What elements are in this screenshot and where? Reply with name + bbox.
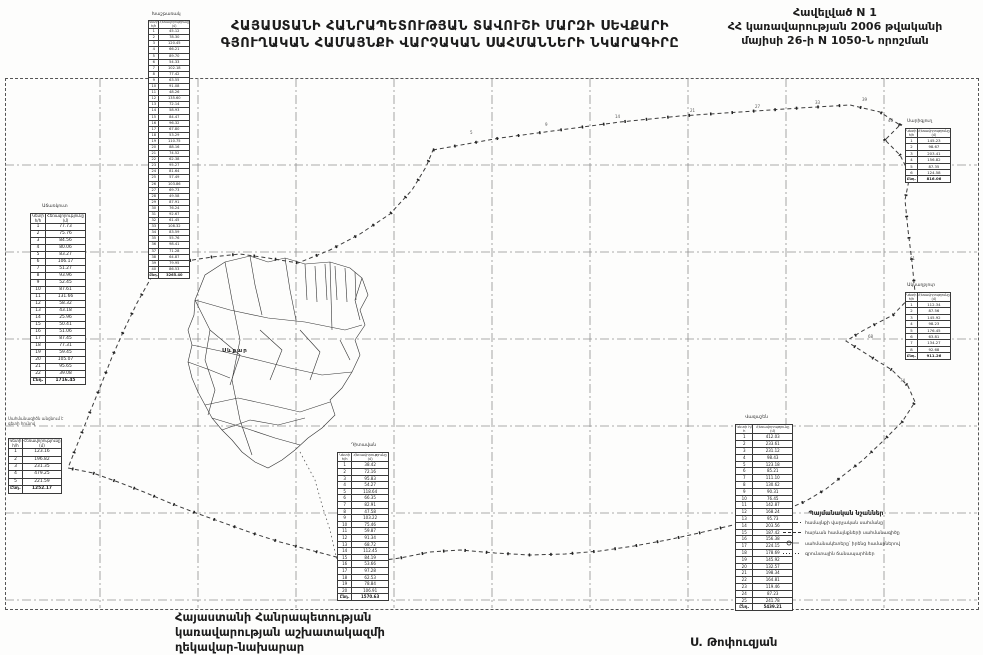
dashed-line-icon: [783, 530, 801, 537]
table-row: 5221.59: [9, 478, 62, 485]
table-total-row: Ընդ.3265.40: [149, 272, 190, 278]
table-cell: 4: [338, 482, 352, 489]
table-cell: 3: [31, 238, 46, 245]
table-cell: 118.64: [352, 488, 389, 495]
table-cell: 59.45: [45, 350, 85, 357]
table-cell: 5: [9, 478, 23, 485]
table-row: 8130.62: [736, 481, 793, 488]
table-cell: 2: [736, 441, 753, 448]
table-header-row: Կետի հ/հՀեռավորությունը (մ): [149, 21, 190, 29]
table-cell: 87.23: [753, 590, 793, 597]
table-row: 1087.61: [31, 287, 86, 294]
table-cell: 23: [736, 583, 753, 590]
table-cell: 76.45: [753, 495, 793, 502]
distance-table-small-left: Կետի հ/հՀեռավորությունը (մ)1123.162196.8…: [8, 438, 62, 494]
table-cell: 4: [31, 245, 46, 252]
signature-line-3: ղեկավար-նախարար: [175, 640, 385, 655]
table-row: 2239.08: [31, 371, 86, 378]
table-cell: 20: [338, 587, 352, 594]
table-cell: 15: [338, 554, 352, 561]
boundary-point-number: 68: [868, 334, 873, 339]
table-row: 1076.45: [736, 495, 793, 502]
boundary-point-number: 61: [910, 256, 915, 261]
table-row: 6106.17: [31, 259, 86, 266]
table-cell: 9: [736, 488, 753, 495]
table-row: 751.27: [31, 266, 86, 273]
table-cell: 8: [338, 508, 352, 515]
dashdot-line-icon: [783, 520, 801, 527]
table-row: 1258.32: [31, 301, 86, 308]
boundary-point-number: 27: [755, 104, 760, 109]
table-cell: 7: [31, 266, 46, 273]
table-cell: Ընդ.: [149, 272, 159, 278]
table-cell: 13: [31, 308, 46, 315]
distance-table: Կետի հ/հՀեռավորությունը (մ)138.42272.163…: [337, 452, 389, 601]
table-cell: 130.62: [753, 481, 793, 488]
distance-table-acharkut: Աճառկուտ Կետի հ/հՀեռավորությունը (մ)177.…: [30, 213, 86, 385]
table-row: 847.58: [338, 508, 389, 515]
legend-item: սահմանակետերը՝ իրենց համարներով: [783, 540, 909, 548]
table-label: Վազաշեն: [745, 415, 768, 420]
table-row: 384.56: [31, 238, 86, 245]
table-cell: 123.16: [22, 449, 61, 456]
signature-line-1: Հայաստանի Հանրապետության: [175, 610, 385, 625]
table-cell: 5: [31, 252, 46, 259]
table-cell: 51.27: [45, 266, 85, 273]
table-header-row: Կետի հ/հՀեռավորությունը (մ): [31, 214, 86, 224]
table-row: 1291.34: [338, 534, 389, 541]
table-cell: 21: [31, 364, 46, 371]
table-row: 1343.18: [31, 308, 86, 315]
table-cell: 17: [736, 543, 753, 550]
legend-item-label: սահմանակետերը՝ իրենց համարներով: [805, 542, 900, 547]
table-row: 275.76: [31, 231, 86, 238]
table-cell: 66.35: [352, 495, 389, 502]
legend-item-label: համայնքի վարչական սահմանը: [805, 521, 883, 526]
table-cell: 8: [736, 481, 753, 488]
table-cell: 20: [31, 357, 46, 364]
column-header: Հեռավորությունը (մ): [45, 214, 85, 224]
table-header-row: Կետի հ/հՀեռավորությունը (մ): [338, 453, 389, 462]
table-cell: 106.17: [45, 259, 85, 266]
table-cell: 19: [31, 350, 46, 357]
table-cell: 8: [31, 273, 46, 280]
table-cell: 13: [338, 541, 352, 548]
table-row: 952.45: [31, 280, 86, 287]
table-cell: Ընդ.: [338, 594, 352, 601]
table-cell: 1: [9, 449, 23, 456]
table-cell: 6: [338, 495, 352, 502]
table-row: 2487.23: [736, 590, 793, 597]
table-cell: 1: [31, 224, 46, 231]
table-header-row: Կետի հ/հՀեռավորությունը (մ): [906, 129, 951, 138]
table-row: 1584.19: [338, 554, 389, 561]
table-label: Սարիգյուղ: [907, 119, 932, 124]
boundary-point-number: 39: [862, 97, 867, 102]
table-cell: 4: [736, 454, 753, 461]
table-cell: 3: [736, 448, 753, 455]
table-row: 583.27: [31, 252, 86, 259]
table-row: 2195.65: [31, 364, 86, 371]
signature-block: Հայաստանի Հանրապետության կառավարության ա…: [175, 610, 385, 655]
table-row: 685.21: [736, 468, 793, 475]
table-cell: 77.31: [45, 343, 85, 350]
table-cell: 68.72: [352, 541, 389, 548]
table-cell: 479.25: [22, 471, 61, 478]
table-cell: 2: [9, 456, 23, 463]
table-cell: 54.27: [352, 482, 389, 489]
table-cell: 103.22: [352, 515, 389, 522]
table-row: 990.31: [736, 488, 793, 495]
table-total-row: Ընդ.1252.17: [9, 486, 62, 493]
table-cell: 11: [31, 294, 46, 301]
table-cell: 241.78: [753, 597, 793, 604]
table-cell: Ընդ.: [9, 486, 23, 493]
table-cell: 17: [338, 567, 352, 574]
table-cell: 2: [31, 231, 46, 238]
border-point-icon: [783, 540, 801, 548]
column-header: Կետի հ/հ: [906, 293, 918, 302]
signature-line-2: կառավարության աշխատակազմի: [175, 625, 385, 640]
table-cell: 105.07: [45, 357, 85, 364]
table-row: 480.06: [31, 245, 86, 252]
table-row: 4479.25: [9, 471, 62, 478]
table-row: 782.91: [338, 501, 389, 508]
table-row: 893.96: [31, 273, 86, 280]
table-cell: 12: [31, 301, 46, 308]
table-cell: 1: [338, 462, 352, 469]
table-cell: 119.46: [753, 583, 793, 590]
table-row: 395.83: [338, 475, 389, 482]
table-row: 1797.28: [338, 567, 389, 574]
table-cell: 38.42: [352, 462, 389, 469]
table-cell: 98.43: [753, 454, 793, 461]
table-cell: 19: [736, 556, 753, 563]
table-cell: 4: [9, 471, 23, 478]
table-row: 20105.07: [31, 357, 86, 364]
table-header-row: Կետի հ/հՀեռավորությունը (մ): [906, 293, 951, 302]
column-header: Կետի հ/հ: [338, 453, 352, 462]
table-cell: 1716.45: [45, 378, 85, 385]
table-row: 1978.84: [338, 581, 389, 588]
table-cell: 11: [338, 528, 352, 535]
table-cell: Ընդ.: [906, 353, 918, 359]
table-cell: 1570.63: [352, 594, 389, 601]
distance-table: Կետի հ/հՀեռավորությունը (մ)1112.34287.56…: [905, 292, 951, 360]
table-row: 138.42: [338, 462, 389, 469]
table-row: 1368.72: [338, 541, 389, 548]
table-cell: 5: [736, 461, 753, 468]
table-cell: 72.16: [352, 469, 389, 476]
table-cell: 25.96: [45, 315, 85, 322]
table-cell: 14: [338, 548, 352, 555]
table-row: 1412.03: [736, 434, 793, 441]
table-cell: 17: [31, 336, 46, 343]
table-row: 5118.64: [338, 488, 389, 495]
legend-item-label: գրունտային ճանապարհներ: [805, 552, 875, 557]
table-cell: 7: [338, 501, 352, 508]
table-cell: 111.10: [753, 475, 793, 482]
table-row: 25241.78: [736, 597, 793, 604]
boundary-point-number: 33: [815, 100, 820, 105]
table-label: Խաշթառակ: [152, 12, 181, 17]
table-cell: 75.46: [352, 521, 389, 528]
table-cell: 3: [338, 475, 352, 482]
table-cell: 10: [338, 521, 352, 528]
table-cell: 21: [736, 570, 753, 577]
boundary-point-number: 21: [690, 108, 695, 113]
table-cell: 9: [338, 515, 352, 522]
table-row: 14112.45: [338, 548, 389, 555]
table-total-row: Ընդ.1570.63: [338, 594, 389, 601]
table-cell: 13: [736, 515, 753, 522]
table-row: 1651.06: [31, 329, 86, 336]
village-label: Սևքար: [222, 348, 248, 354]
distance-table: Կետի հ/հՀեռավորությունը (մ)1123.162196.8…: [8, 438, 62, 494]
table-cell: 59.87: [352, 528, 389, 535]
table-cell: 221.59: [22, 478, 61, 485]
table-cell: 112.45: [352, 548, 389, 555]
table-cell: 412.03: [753, 434, 793, 441]
table-cell: 53.66: [352, 561, 389, 568]
table-row: 1959.45: [31, 350, 86, 357]
table-cell: 18: [338, 574, 352, 581]
table-cell: 80.06: [45, 245, 85, 252]
table-row: 11142.87: [736, 502, 793, 509]
table-cell: 39.08: [45, 371, 85, 378]
table-cell: 231.12: [753, 448, 793, 455]
table-cell: Ընդ.: [906, 176, 918, 182]
column-header: Հեռավորությունը (մ): [917, 293, 950, 302]
table-cell: 90.31: [753, 488, 793, 495]
table-row: 177.73: [31, 224, 86, 231]
column-header: Հեռավորությունը (մ): [159, 21, 190, 29]
distance-table-sarigyugh: Սարիգյուղ Կետի հ/հՀեռավորությունը (մ)114…: [905, 128, 951, 183]
table-cell: 231.35: [22, 464, 61, 471]
table-cell: 10: [736, 495, 753, 502]
table-row: 1653.66: [338, 561, 389, 568]
table-row: 1877.31: [31, 343, 86, 350]
table-cell: 22: [736, 577, 753, 584]
column-header: Հեռավորությունը (մ): [753, 425, 793, 434]
table-cell: 911.26: [917, 353, 950, 359]
table-total-row: Ընդ.1716.45: [31, 378, 86, 385]
distance-table: Կետի հ/հՀեռավորությունը (մ)1145.23298.67…: [905, 128, 951, 183]
table-total-row: Ընդ.5439.21: [736, 604, 793, 611]
map-sheet: Հավելված N 1 ՀՀ կառավարության 2006 թվակա…: [0, 0, 983, 655]
column-header: Հեռավորությունը (մ): [917, 129, 950, 138]
table-row: 498.43: [736, 454, 793, 461]
table-cell: 3265.40: [159, 272, 190, 278]
column-header: Կետի հ/հ: [149, 21, 159, 29]
table-header-row: Կետի հ/հՀեռավորությունը (մ): [9, 439, 62, 449]
table-cell: 12: [338, 534, 352, 541]
table-total-row: Ընդ.816.06: [906, 176, 951, 182]
table-label: Աճառկուտ: [42, 204, 68, 209]
boundary-point-number: 14: [615, 114, 620, 119]
table-cell: 6: [31, 259, 46, 266]
table-cell: 78.84: [352, 581, 389, 588]
table-row: 5123.18: [736, 461, 793, 468]
table-cell: 142.87: [753, 502, 793, 509]
table-cell: 16: [31, 329, 46, 336]
table-cell: 233.61: [753, 441, 793, 448]
map-note: Սահմանագիծն անցնում է գետի հունով: [8, 416, 98, 426]
table-cell: 91.34: [352, 534, 389, 541]
table-row: 272.16: [338, 469, 389, 476]
table-cell: 52.45: [45, 280, 85, 287]
distance-table-khashtarak: Խաշթառակ Կետի հ/հՀեռավորությունը (մ)145.…: [148, 20, 188, 279]
dotted-line-icon: [783, 551, 801, 558]
legend-item: հարևան համայնքների սահմանագիծը: [783, 530, 909, 537]
table-cell: 47.58: [352, 508, 389, 515]
boundary-point-number: 5: [470, 130, 473, 135]
table-cell: 14: [31, 315, 46, 322]
table-cell: 16: [338, 561, 352, 568]
column-header: Կետի հ/հ: [9, 439, 23, 449]
table-row: 23119.46: [736, 583, 793, 590]
table-row: 2233.61: [736, 441, 793, 448]
table-row: 1862.53: [338, 574, 389, 581]
table-cell: 18: [736, 549, 753, 556]
boundary-point-number: 74: [900, 378, 905, 383]
table-header-row: Կետի հ/հՀեռավորությունը (մ): [736, 425, 793, 434]
table-row: 3231.12: [736, 448, 793, 455]
table-cell: 6: [736, 468, 753, 475]
legend-item: համայնքի վարչական սահմանը: [783, 520, 909, 527]
table-cell: 11: [736, 502, 753, 509]
table-cell: 106.91: [352, 587, 389, 594]
table-row: 1787.45: [31, 336, 86, 343]
table-cell: 9: [31, 280, 46, 287]
table-cell: 123.18: [753, 461, 793, 468]
table-total-row: Ընդ.911.26: [906, 353, 951, 359]
table-cell: 5439.21: [753, 604, 793, 611]
note-line-2: գետի հունով: [8, 421, 98, 426]
table-row: 666.35: [338, 495, 389, 502]
table-cell: 24: [736, 590, 753, 597]
table-cell: 10: [31, 287, 46, 294]
table-cell: 12: [736, 509, 753, 516]
table-row: 7111.10: [736, 475, 793, 482]
table-cell: 95.65: [45, 364, 85, 371]
column-header: Կետի հ/հ: [31, 214, 46, 224]
table-cell: 1: [736, 434, 753, 441]
table-cell: 5: [338, 488, 352, 495]
column-header: Հեռավորությունը (մ): [22, 439, 61, 449]
column-header: Կետի հ/հ: [906, 129, 918, 138]
boundary-point-number: 9: [545, 122, 548, 127]
table-row: 1075.46: [338, 521, 389, 528]
table-cell: 15: [736, 529, 753, 536]
signer-name: Ս. Թոփուզյան: [690, 635, 777, 649]
table-cell: 84.19: [352, 554, 389, 561]
column-header: Հեռավորությունը (մ): [352, 453, 389, 462]
table-cell: 93.96: [45, 273, 85, 280]
table-cell: 816.06: [917, 176, 950, 182]
table-cell: 87.45: [45, 336, 85, 343]
table-cell: 82.91: [352, 501, 389, 508]
table-cell: 22: [31, 371, 46, 378]
table-row: 1123.16: [9, 449, 62, 456]
boundary-point-number: 46: [888, 118, 893, 123]
table-row: 1425.96: [31, 315, 86, 322]
table-cell: Ընդ.: [31, 378, 46, 385]
legend-title: Պայմանական նշաններ: [783, 510, 909, 517]
table-cell: 87.61: [45, 287, 85, 294]
table-cell: 43.18: [45, 308, 85, 315]
distance-table: Կետի հ/հՀեռավորությունը (մ)145.12278.303…: [148, 20, 190, 279]
table-cell: 1252.17: [22, 486, 61, 493]
table-cell: 19: [338, 581, 352, 588]
table-cell: 7: [736, 475, 753, 482]
table-cell: 131.66: [45, 294, 85, 301]
table-cell: 83.27: [45, 252, 85, 259]
table-cell: 18: [31, 343, 46, 350]
column-header: Կետի հ/հ: [736, 425, 753, 434]
table-row: 11131.66: [31, 294, 86, 301]
table-cell: 15: [31, 322, 46, 329]
distance-table-aknaghbyur: Ակնաղբյուր Կետի հ/հՀեռավորությունը (մ)11…: [905, 292, 951, 360]
legend-item: գրունտային ճանապարհներ: [783, 551, 909, 558]
table-cell: 75.76: [45, 231, 85, 238]
table-cell: 196.82: [22, 456, 61, 463]
connector-track: [300, 452, 336, 556]
table-label: Դիտավան: [351, 443, 376, 448]
table-label: Ակնաղբյուր: [907, 283, 935, 288]
table-row: 454.27: [338, 482, 389, 489]
table-cell: 50.41: [45, 322, 85, 329]
table-row: 1159.87: [338, 528, 389, 535]
table-cell: 25: [736, 597, 753, 604]
table-cell: 97.28: [352, 567, 389, 574]
table-cell: 3: [9, 464, 23, 471]
legend: Պայմանական նշաններ համայնքի վարչական սահ…: [783, 510, 909, 582]
table-cell: 14: [736, 522, 753, 529]
table-cell: 2: [338, 469, 352, 476]
legend-item-label: հարևան համայնքների սահմանագիծը: [805, 531, 900, 536]
table-cell: Ընդ.: [736, 604, 753, 611]
distance-table-ditavan: Դիտավան Կետի հ/հՀեռավորությունը (մ)138.4…: [337, 452, 389, 601]
table-row: 2196.82: [9, 456, 62, 463]
table-row: 3231.35: [9, 464, 62, 471]
table-cell: 95.83: [352, 475, 389, 482]
table-cell: 85.21: [753, 468, 793, 475]
table-cell: 51.06: [45, 329, 85, 336]
table-row: 1550.41: [31, 322, 86, 329]
table-cell: 58.32: [45, 301, 85, 308]
table-cell: 20: [736, 563, 753, 570]
table-row: 20106.91: [338, 587, 389, 594]
distance-table: Կետի հ/հՀեռավորությունը (մ)177.73275.763…: [30, 213, 86, 385]
table-cell: 77.73: [45, 224, 85, 231]
table-cell: 62.53: [352, 574, 389, 581]
table-cell: 84.56: [45, 238, 85, 245]
table-cell: 16: [736, 536, 753, 543]
table-row: 9103.22: [338, 515, 389, 522]
settlement-parcels: [188, 256, 368, 468]
